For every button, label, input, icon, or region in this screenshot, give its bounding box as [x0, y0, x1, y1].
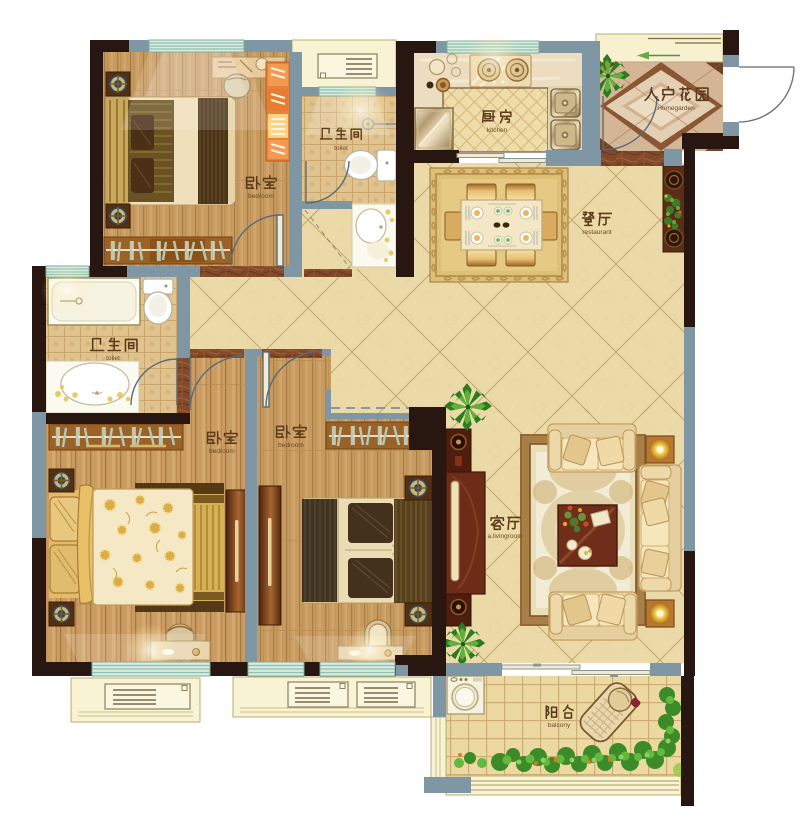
svg-text:bedroom: bedroom [278, 442, 304, 449]
svg-text:bedroom: bedroom [209, 448, 235, 455]
svg-text:bedroom: bedroom [248, 193, 274, 200]
svg-text:balcony: balcony [548, 722, 571, 729]
svg-text:Homegarden: Homegarden [657, 105, 695, 112]
svg-text:kitchen: kitchen [487, 127, 508, 134]
svg-text:a.livingroom: a.livingroom [487, 533, 522, 540]
svg-text:toilet: toilet [106, 355, 120, 362]
svg-text:restaurant: restaurant [582, 229, 611, 236]
svg-text:toilet: toilet [334, 145, 348, 152]
